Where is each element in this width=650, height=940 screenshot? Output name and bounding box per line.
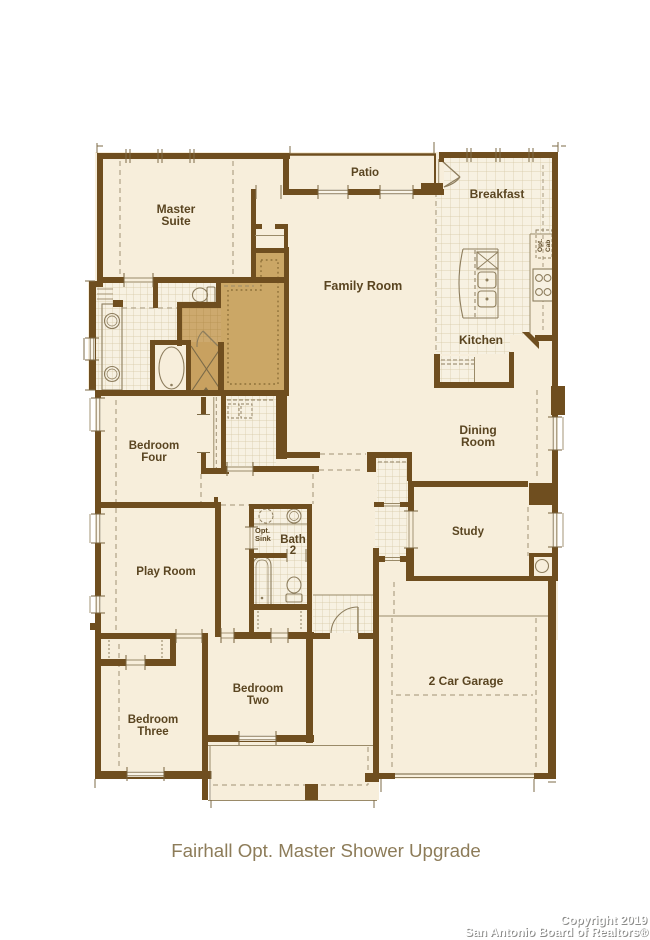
svg-text:MasterSuite: MasterSuite (157, 202, 196, 228)
svg-text:Play Room: Play Room (136, 566, 195, 578)
svg-text:Family Room: Family Room (324, 279, 403, 293)
svg-text:Study: Study (452, 526, 485, 538)
svg-text:DiningRoom: DiningRoom (459, 423, 496, 449)
svg-text:Sink: Sink (255, 534, 272, 543)
svg-text:Kitchen: Kitchen (459, 333, 503, 347)
svg-text:Breakfast: Breakfast (470, 187, 525, 201)
svg-text:Cab: Cab (545, 240, 552, 252)
svg-text:Patio: Patio (351, 167, 379, 179)
svg-text:Opt.: Opt. (537, 239, 544, 252)
svg-text:2 Car Garage: 2 Car Garage (429, 674, 504, 688)
svg-text:San Antonio Board of Realtors®: San Antonio Board of Realtors® (465, 925, 648, 939)
svg-text:2: 2 (290, 545, 296, 557)
svg-text:Fairhall Opt. Master Shower Up: Fairhall Opt. Master Shower Upgrade (171, 840, 481, 861)
